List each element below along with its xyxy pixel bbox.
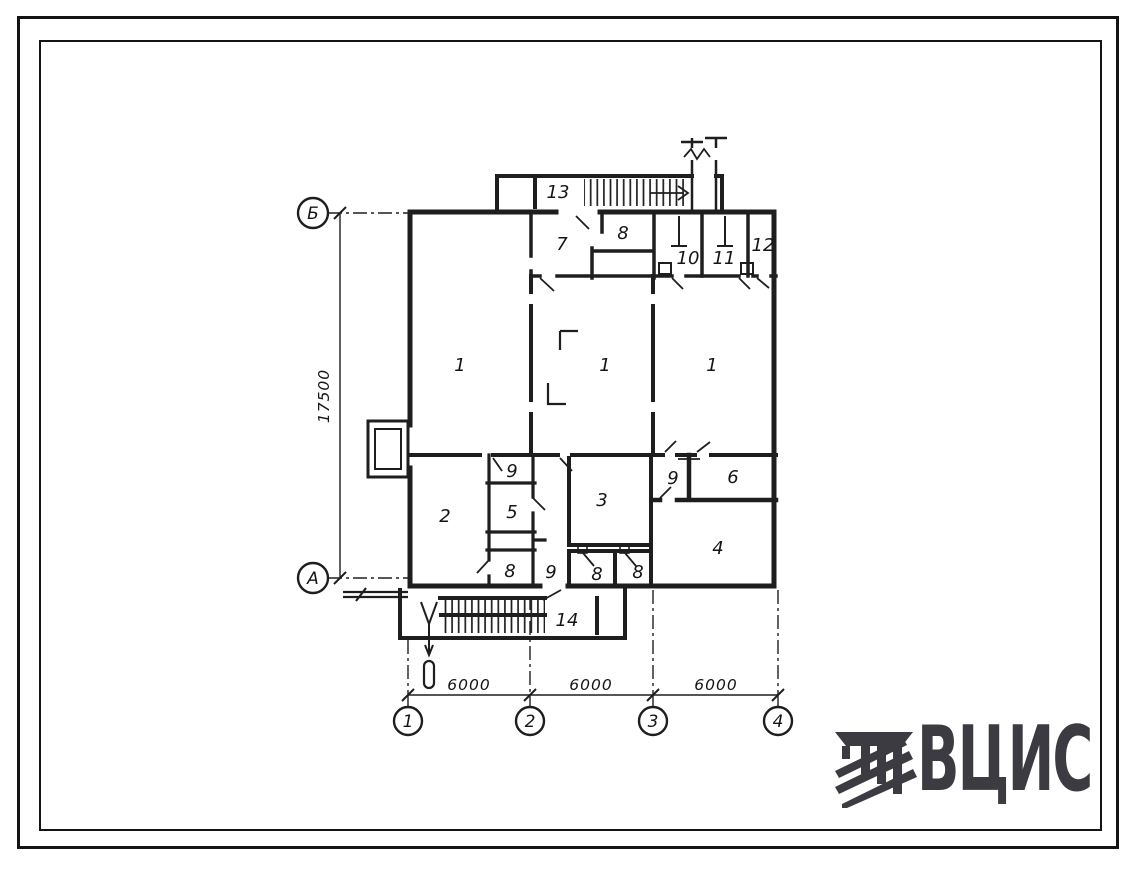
room-label-1-8: 1	[706, 355, 717, 376]
room-label-8-19: 8	[632, 562, 643, 583]
axis-bubble-label-4: 4	[773, 712, 784, 732]
room-label-10-3: 10	[677, 248, 700, 269]
vcis-emblem-icon	[833, 726, 917, 808]
room-label-3-12: 3	[596, 490, 607, 511]
axis-bubble-label-Б: Б	[307, 204, 319, 224]
room-label-1-6: 1	[454, 355, 465, 376]
room-label-8-18: 8	[591, 564, 602, 585]
axis-bubble-label-1: 1	[403, 712, 414, 732]
dimension-label-1: 6000	[447, 676, 490, 694]
dimension-label-0: 17500	[315, 369, 333, 423]
room-label-12-5: 12	[752, 235, 775, 256]
dimension-label-3: 6000	[694, 676, 737, 694]
axis-bubble-label-2: 2	[525, 712, 536, 732]
axis-bubble-label-А: А	[306, 569, 319, 589]
counter-marks	[548, 331, 578, 404]
room-label-9-17: 9	[545, 562, 556, 583]
room-label-8-16: 8	[504, 561, 515, 582]
hall-partitions	[531, 276, 653, 455]
entrance-door-mark	[424, 661, 434, 688]
room-label-8-2: 8	[617, 223, 628, 244]
labels-layer: 13781011121119523964898814БА123417500600…	[298, 182, 792, 735]
room-label-2-11: 2	[439, 506, 450, 527]
top-stair-corridor	[497, 138, 727, 210]
entrance-arrow	[421, 602, 437, 655]
vcis-logo-text: ВЦИС	[917, 712, 1092, 808]
room-label-7-1: 7	[556, 234, 568, 255]
dimension-label-2: 6000	[569, 676, 612, 694]
room-label-9-13: 9	[667, 468, 678, 489]
room-label-6-14: 6	[727, 467, 738, 488]
room-label-11-4: 11	[713, 248, 736, 269]
room-label-1-7: 1	[599, 355, 610, 376]
room-label-13-0: 13	[547, 182, 570, 203]
room-label-14-20: 14	[556, 610, 579, 631]
axis-bubble-label-3: 3	[648, 712, 659, 732]
room-label-9-9: 9	[506, 461, 517, 482]
bottom-stair-corridor	[400, 590, 625, 688]
vcis-logo: ВЦИС	[833, 712, 1093, 812]
room-label-5-10: 5	[506, 502, 517, 523]
break-line	[684, 149, 710, 159]
drawing-sheet: 13781011121119523964898814БА123417500600…	[0, 0, 1139, 869]
external-shaft	[368, 421, 408, 477]
room-label-4-15: 4	[712, 538, 723, 559]
sink-1	[659, 263, 671, 274]
